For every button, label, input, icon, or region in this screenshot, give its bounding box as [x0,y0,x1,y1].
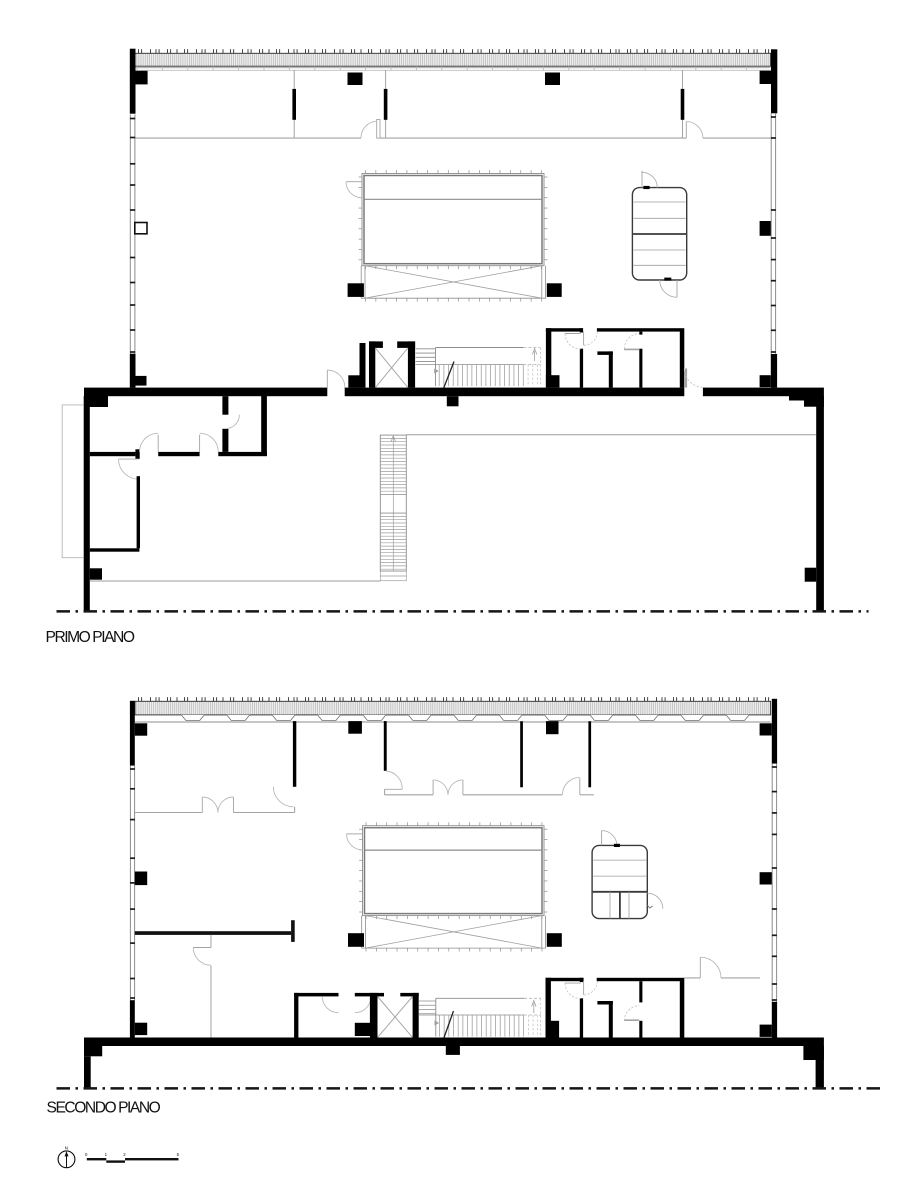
svg-text:N: N [65,1146,68,1151]
svg-text:PRIMO PIANO: PRIMO PIANO [46,629,135,646]
svg-text:SECONDO PIANO: SECONDO PIANO [47,1100,161,1117]
